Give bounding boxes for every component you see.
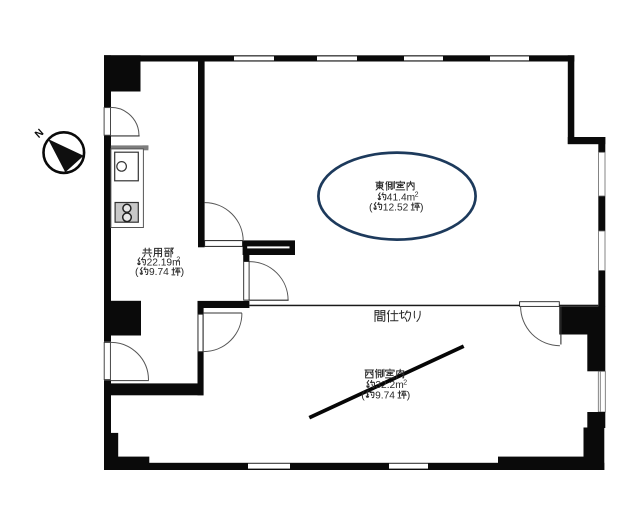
svg-text:2: 2 [403, 379, 407, 386]
svg-text:): ) [407, 389, 411, 401]
svg-text:(: ( [135, 266, 139, 278]
svg-text:(: ( [369, 201, 373, 213]
svg-text:9.74: 9.74 [375, 390, 395, 401]
svg-text:12.52: 12.52 [383, 202, 409, 213]
svg-text:2: 2 [415, 192, 419, 199]
svg-text:9.74: 9.74 [149, 267, 169, 278]
svg-text:2: 2 [176, 257, 180, 264]
svg-text:): ) [420, 201, 424, 213]
svg-text:(: ( [361, 389, 365, 401]
svg-text:): ) [181, 266, 185, 278]
